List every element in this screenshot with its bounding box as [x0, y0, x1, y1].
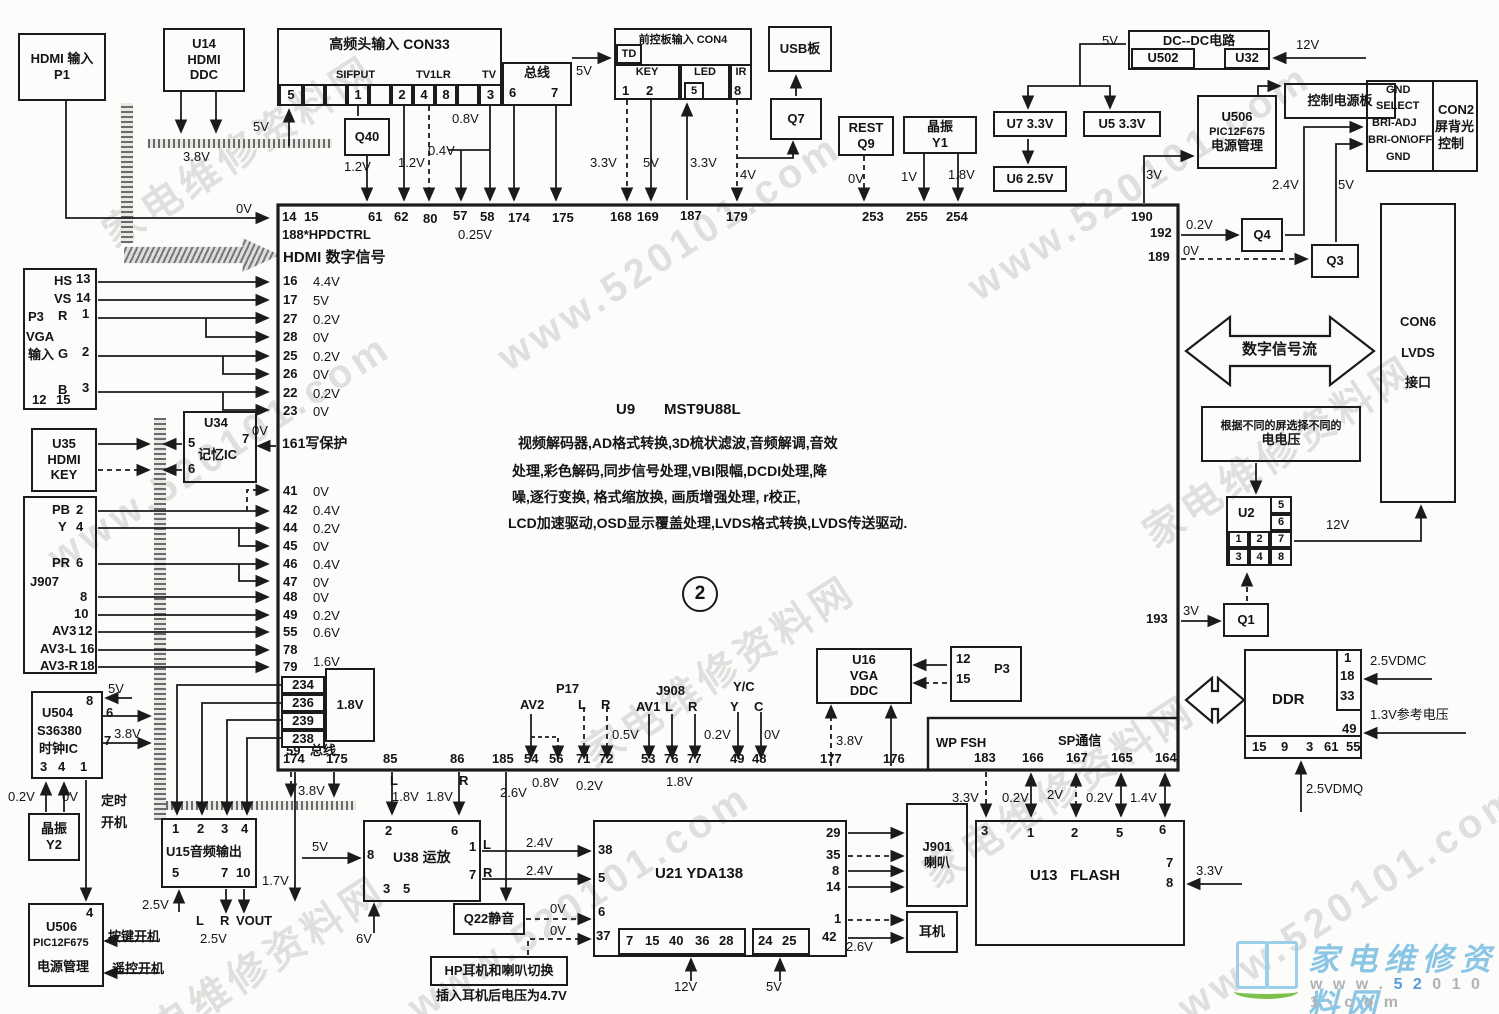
voltage-label: 1.7V — [262, 874, 289, 888]
block-label: U504 — [42, 706, 73, 720]
voltage-label: 0.2V — [1186, 218, 1213, 232]
block-label: PIC12F675 — [33, 938, 89, 950]
pin-label: 33 — [1340, 689, 1354, 703]
pin-label: 35 — [826, 848, 840, 862]
signal-label: R — [459, 774, 468, 788]
block-title: 高频头输入 CON33 — [329, 36, 450, 52]
con33-label-sifput: SIFPUT — [336, 70, 375, 82]
signal-label: C — [754, 700, 763, 714]
con33-pin-cell: 1 — [347, 84, 369, 106]
schematic-page: 家电维修资料网 www.520101.com www.520101.com 家电… — [0, 0, 1499, 1014]
block-u35-hdmi-key: U35 HDMI KEY — [31, 428, 97, 492]
block-label: U2 — [1238, 506, 1255, 520]
con4-led5-cell: 5 — [684, 82, 704, 100]
voltage-label: 1.2V — [344, 160, 371, 174]
pin-label: 3 — [82, 381, 89, 395]
chip-description: LCD加速驱动,OSD显示覆盖处理,LVDS格式转换,LVDS传送驱动. — [508, 516, 907, 531]
pin-label: 56 — [549, 752, 563, 766]
pin-label: 28 — [283, 330, 297, 344]
pin-label: 7 — [469, 868, 476, 882]
block-label: CON6 — [1400, 315, 1436, 330]
voltage-label: 0.2V — [1002, 791, 1029, 805]
voltage-label: 0.2V — [8, 790, 35, 804]
chip-description: 处理,彩色解码,同步信号处理,VBI限幅,DCDI处理,降 — [512, 464, 827, 479]
block-crystal-y2: 晶振 Y2 — [28, 813, 80, 861]
chip-description: 噪,逐行变换, 格式缩放换, 画质增强处理, r校正, — [512, 490, 801, 505]
pin-label: 7 — [104, 734, 111, 748]
voltage-label: 0.6V — [313, 626, 340, 640]
pin-label: 168 — [610, 210, 632, 224]
block-earphone: 耳机 — [906, 911, 958, 953]
pin-label: 8 — [86, 694, 93, 708]
block-hp-speaker-switch: HP耳机和喇叭切换 — [430, 956, 568, 986]
block-label: IR — [736, 66, 747, 79]
pin-label: 5 — [188, 436, 195, 450]
site-logo-book-icon — [1236, 941, 1268, 989]
voltage-label: 2.5V — [142, 898, 169, 912]
block-label: VGA — [850, 669, 878, 684]
pin-label: 1 — [1027, 826, 1034, 840]
block-label: VGA — [26, 330, 54, 344]
pin-label: 79 — [283, 660, 297, 674]
site-url-part: 5 2 — [1394, 976, 1425, 993]
pin-label: 254 — [946, 210, 968, 224]
pin-label: 7 — [242, 432, 249, 446]
block-title: 前控板输入 CON4 — [639, 34, 728, 47]
pin-label: 175 — [552, 211, 574, 225]
block-label: 电源管理 — [37, 960, 89, 974]
signal-label: R — [483, 866, 492, 880]
block-u7: U7 3.3V — [993, 111, 1067, 137]
pin-label: 179 — [726, 210, 748, 224]
con2-name: CON2 — [1438, 103, 1474, 117]
block-label: S36380 — [37, 724, 82, 738]
block-u5: U5 3.3V — [1083, 111, 1161, 137]
voltage-label: 0V — [236, 202, 252, 216]
con33-pin-cell: 3 — [479, 84, 502, 106]
mem-pin-cell: 234 — [281, 676, 325, 694]
pin-label: 8 — [367, 848, 374, 862]
pin-label: 1 — [622, 84, 629, 98]
voltage-label: 3.3V — [952, 791, 979, 805]
pin-label: 61 — [368, 210, 382, 224]
pin-label: 36 — [695, 934, 709, 948]
voltage-label: 0.5V — [612, 728, 639, 742]
signal-label: J908 — [656, 684, 685, 698]
voltage-label: 0V — [313, 331, 329, 345]
voltage-label: 3.3V — [1196, 864, 1223, 878]
signal-label: Y/C — [733, 680, 755, 694]
pin-label: 6 — [598, 905, 605, 919]
voltage-label: 0.2V — [576, 779, 603, 793]
block-title: DC--DC电路 — [1163, 34, 1235, 49]
pin-label: 4 — [58, 760, 65, 774]
pin-label: G — [58, 347, 68, 361]
voltage-label: 5V — [1102, 34, 1118, 48]
block-label: Y2 — [46, 838, 62, 853]
pin-label: 4 — [1256, 551, 1262, 564]
pin-label: 28 — [719, 934, 733, 948]
pin-label: PB — [52, 503, 70, 517]
con33-pin-cell: 8 — [435, 84, 457, 106]
pin-label: 3 — [221, 822, 228, 836]
u2-cell: 3 — [1228, 548, 1249, 566]
pin-label: 8 — [80, 590, 87, 604]
block-label: Q9 — [857, 137, 874, 152]
block-label: U7 3.3V — [1007, 117, 1054, 132]
block-u14-hdmi-ddc: U14 HDMI DDC — [163, 28, 245, 92]
pin-label: 46 — [283, 557, 297, 571]
block-label: Q3 — [1326, 254, 1343, 269]
pin-label: 13 — [76, 272, 90, 286]
voltage-label: 1.8V — [392, 790, 419, 804]
voltage-label: 5V — [576, 64, 592, 78]
pin-label: 2 — [385, 824, 392, 838]
pin-label: 3 — [1306, 740, 1313, 754]
pin-label: 4 — [420, 88, 427, 103]
u2-cell: 5 — [1270, 496, 1292, 514]
pin-label: 3 — [383, 882, 390, 896]
voltage-label: 5V — [108, 682, 124, 696]
pin-label: 38 — [598, 843, 612, 857]
pin-label: 12 — [956, 652, 970, 666]
block-label: HDMI — [47, 453, 80, 468]
voltage-label: 2.6V — [500, 786, 527, 800]
voltage-label: 5V — [312, 840, 328, 854]
pin-label: 167 — [1066, 751, 1088, 765]
signal-label: AV1 — [636, 700, 660, 714]
pin-label: 4 — [241, 822, 248, 836]
block-u502: U502 — [1131, 48, 1195, 69]
voltage-label: 6V — [356, 932, 372, 946]
voltage-label: 2.4V — [526, 864, 553, 878]
block-q7: Q7 — [770, 98, 822, 140]
u2-cell: 4 — [1249, 548, 1270, 566]
voltage-label: 1.8V — [426, 790, 453, 804]
pin-label: 6 — [76, 556, 83, 570]
voltage-label: 2.6V — [846, 940, 873, 954]
block-label: U5 3.3V — [1099, 117, 1146, 132]
voltage-label: 4V — [740, 168, 756, 182]
pin-label: 1 — [834, 912, 841, 926]
pin-label: 37 — [596, 929, 610, 943]
chip-part-number: MST9U88L — [664, 402, 741, 418]
chip-description: 视频解码器,AD格式转换,3D梳状滤波,音频解调,音效 — [518, 436, 838, 451]
voltage-label: 0.2V — [313, 313, 340, 327]
voltage-label: 3.8V — [298, 784, 325, 798]
voltage-label: 4.4V — [313, 275, 340, 289]
voltage-label: 12V — [1326, 518, 1349, 532]
pin-label: 12 — [32, 393, 46, 407]
pin-label: 7 — [1166, 856, 1173, 870]
pin-label: 174 — [283, 752, 305, 766]
pin-label: 185 — [492, 752, 514, 766]
con4-td-cell: TD — [616, 44, 642, 64]
pin-label: 5 — [691, 85, 697, 98]
voltage-label: 0.4V — [428, 144, 455, 158]
block-label: 晶振 — [41, 822, 67, 837]
con33-pin-cell — [303, 84, 325, 106]
voltage-label: 1.8V — [337, 698, 364, 713]
con33-pin-cell — [325, 84, 347, 106]
page-number: 2 — [695, 583, 706, 605]
pin-label: 22 — [283, 386, 297, 400]
con2-pin: BRI-ON\OFF — [1368, 135, 1432, 147]
pin-label: 5 — [1278, 499, 1284, 512]
block-label: 时钟IC — [39, 742, 78, 756]
voltage-label: 0V — [313, 540, 329, 554]
voltage-label: 0.4V — [313, 504, 340, 518]
signal-label: P17 — [556, 682, 579, 696]
pin-label: 2 — [398, 88, 405, 103]
voltage-label: 0V — [62, 790, 78, 804]
pin-label: Y — [58, 520, 67, 534]
con2-pin: GND — [1386, 152, 1410, 164]
pin-label: 2 — [82, 345, 89, 359]
voltage-label: 0.2V — [313, 350, 340, 364]
block-label: J907 — [30, 575, 59, 589]
voltage-label: 5V — [643, 156, 659, 170]
page-number-badge: 2 — [682, 576, 718, 612]
voltage-label: 3.8V — [836, 734, 863, 748]
block-label: U21 YDA138 — [655, 866, 743, 882]
pin-label: 86 — [450, 752, 464, 766]
pin-label: 41 — [283, 484, 297, 498]
pin-label: 48 — [752, 752, 766, 766]
voltage-label: 2.5VDMC — [1370, 654, 1426, 668]
signal-label: L — [390, 774, 398, 788]
pin-label: 193 — [1146, 612, 1168, 626]
block-label: U16 — [852, 653, 876, 668]
site-url-part: w w w . — [1310, 976, 1386, 993]
block-label: 控制电源板 — [1307, 94, 1372, 109]
pin-label: 2 — [1256, 533, 1262, 546]
pin-label: 71 — [576, 752, 590, 766]
pin-label: 8 — [442, 88, 449, 103]
block-label: Q7 — [787, 112, 804, 127]
pin-label: AV3-R — [40, 659, 78, 673]
label-timer-on: 开机 — [101, 816, 127, 830]
pin-label: 42 — [822, 930, 836, 944]
block-label: U506 — [1221, 110, 1252, 125]
pin-label: 58 — [480, 210, 494, 224]
pin-label: 80 — [423, 212, 437, 226]
block-label: Q40 — [355, 130, 380, 145]
pin-label: 15 — [1252, 740, 1266, 754]
voltage-label: 0V — [313, 591, 329, 605]
pin-label: 55 — [1346, 740, 1360, 754]
pin-label: 3 — [1235, 551, 1241, 564]
con33-pin-cell: 5 — [279, 84, 303, 106]
label-sp-comm: SP通信 — [1058, 734, 1101, 748]
pin-label: 6 — [188, 462, 195, 476]
voltage-label: 12V — [674, 980, 697, 994]
block-crystal-y1: 晶振 Y1 — [903, 116, 977, 154]
voltage-label: 0.2V — [313, 522, 340, 536]
pin-label: 77 — [687, 752, 701, 766]
pin-label: 15 — [304, 210, 318, 224]
voltage-label: 3V — [1146, 168, 1162, 182]
block-label: Q1 — [1237, 613, 1254, 628]
label-remote-power-on: 遥控开机 — [112, 962, 164, 976]
block-q22-mute: Q22静音 — [453, 903, 525, 935]
pin-label: 5 — [598, 871, 605, 885]
pin-label: 25 — [283, 349, 297, 363]
u2-cell: 7 — [1270, 531, 1292, 548]
block-label: DDC — [190, 68, 218, 83]
pin-label: 14 — [826, 880, 840, 894]
voltage-label: 2.5VDMQ — [1306, 782, 1363, 796]
pin-label: 1 — [82, 307, 89, 321]
pin-label: 5 — [172, 866, 179, 880]
block-label: DDC — [850, 684, 878, 699]
pin-label: 9 — [1281, 740, 1288, 754]
pin-label: 42 — [283, 503, 297, 517]
pin-label: 190 — [1131, 210, 1153, 224]
voltage-label: 0.2V — [313, 609, 340, 623]
pin-label: 54 — [524, 752, 538, 766]
pin-label: 183 — [974, 751, 996, 765]
block-label: 根据不同的屏选择不同的 — [1221, 420, 1342, 433]
pin-label: 26 — [283, 367, 297, 381]
block-label: 接口 — [1405, 376, 1431, 391]
voltage-label: 0.8V — [452, 112, 479, 126]
pin-label: 239 — [292, 714, 314, 729]
label-digital-signal-flow: 数字信号流 — [1242, 342, 1317, 358]
block-label: U13 FLASH — [1030, 868, 1120, 884]
block-q4: Q4 — [1241, 218, 1283, 252]
chip-ref: U9 — [616, 402, 635, 418]
block-label: Y1 — [932, 136, 948, 151]
block-reset-q9: REST Q9 — [838, 116, 894, 156]
block-q3: Q3 — [1311, 244, 1359, 278]
pin-label: AV3-L — [40, 642, 77, 656]
pin-label: 14 — [76, 291, 90, 305]
pin-label: 5 — [403, 882, 410, 896]
voltage-label: 2V — [1047, 788, 1063, 802]
block-label: U6 2.5V — [1007, 172, 1054, 187]
pin-label: 14 — [282, 210, 296, 224]
pin-label: 175 — [326, 752, 348, 766]
pin-label: 165 — [1111, 751, 1133, 765]
block-u16-vga-ddc: U16 VGA DDC — [816, 648, 912, 704]
pin-label: 177 — [820, 752, 842, 766]
block-q1: Q1 — [1223, 603, 1269, 637]
pin-label: 18 — [1340, 669, 1354, 683]
voltage-label: 5V — [766, 980, 782, 994]
block-label: 喇叭 — [924, 856, 950, 871]
block-label: 记忆IC — [198, 448, 237, 462]
block-label: HP耳机和喇叭切换 — [444, 964, 553, 979]
pin-label: 17 — [283, 293, 297, 307]
pin-label: 236 — [292, 696, 314, 711]
pin-label: 3 — [487, 88, 494, 103]
block-label: U34 — [204, 416, 228, 430]
mem-pin-cell: 236 — [281, 694, 325, 712]
pin-label: 57 — [453, 209, 467, 223]
pin-label: 53 — [641, 752, 655, 766]
signal-label: L — [483, 838, 491, 852]
pin-label: 3 — [40, 760, 47, 774]
con2-pin: GND — [1386, 85, 1410, 97]
u2-cell: 6 — [1270, 514, 1292, 531]
voltage-label: 3V — [1183, 604, 1199, 618]
block-label: HDMI — [187, 53, 220, 68]
voltage-label: 0V — [764, 728, 780, 742]
block-label: KEY — [51, 468, 78, 483]
block-label: 电电压 — [1261, 433, 1300, 448]
con33-pin-cell — [369, 84, 391, 106]
block-label: 输入 — [28, 348, 54, 362]
mem-voltage-cell: 1.8V — [325, 668, 375, 742]
con33-pin-cell: 4 — [413, 84, 435, 106]
pin-label: R — [58, 309, 67, 323]
pin-label: 8 — [832, 864, 839, 878]
pin-label: AV3 — [52, 624, 76, 638]
pin-label: 49 — [283, 608, 297, 622]
voltage-label: 1V — [901, 170, 917, 184]
pin-label: 1 — [172, 822, 179, 836]
block-label: 总线 — [524, 66, 550, 81]
block-label: U506 — [46, 920, 77, 934]
voltage-label: 0V — [848, 172, 864, 186]
block-label: 耳机 — [919, 925, 945, 940]
pin-label: 15 — [56, 393, 70, 407]
block-label: U32 — [1235, 51, 1259, 66]
pin-label: 2 — [197, 822, 204, 836]
block-label: J901 — [923, 840, 952, 855]
pin-label: 1 — [1235, 533, 1241, 546]
block-label: U35 — [52, 437, 76, 452]
con33-label-tv: TV — [482, 70, 496, 82]
pin-label: 6 — [451, 824, 458, 838]
block-label: PIC12F675 — [1209, 126, 1265, 139]
block-label: LED — [694, 66, 716, 79]
label-wp-fsh: WP FSH — [936, 736, 986, 750]
signal-label: VOUT — [236, 914, 272, 928]
pin-label: 3 — [981, 824, 988, 838]
voltage-label: 1.6V — [313, 655, 340, 669]
pin-label: 2 — [646, 84, 653, 98]
pin-label: 5 — [287, 88, 294, 103]
u2-cell: 2 — [1249, 531, 1270, 548]
pin-label: 187 — [680, 209, 702, 223]
pin-label: 72 — [599, 752, 613, 766]
block-label: REST — [849, 121, 884, 136]
voltage-label: 0V — [550, 924, 566, 938]
block-label: U14 — [192, 37, 216, 52]
pin-label: 10 — [236, 866, 250, 880]
block-panel-voltage-note: 根据不同的屏选择不同的 电电压 — [1201, 406, 1361, 462]
signal-label: R — [688, 700, 697, 714]
pin-label: 6 — [509, 86, 516, 100]
pin-label: 25 — [782, 934, 796, 948]
pin-label: 49 — [730, 752, 744, 766]
signal-label: Y — [730, 700, 739, 714]
con33-label-tv1lr: TV1LR — [416, 70, 451, 82]
block-u6: U6 2.5V — [993, 166, 1067, 192]
block-label: DDR — [1272, 692, 1305, 708]
voltage-label: 0V — [313, 368, 329, 382]
pin-label: 61 — [1324, 740, 1338, 754]
signal-label: R — [220, 914, 229, 928]
pin-label: 47 — [283, 575, 297, 589]
pin-label: HS — [54, 274, 72, 288]
voltage-label: 1.3V参考电压 — [1370, 708, 1449, 722]
pin-label: 1 — [354, 88, 361, 103]
con2-pin: SELECT — [1376, 101, 1419, 113]
voltage-label: 5V — [313, 294, 329, 308]
